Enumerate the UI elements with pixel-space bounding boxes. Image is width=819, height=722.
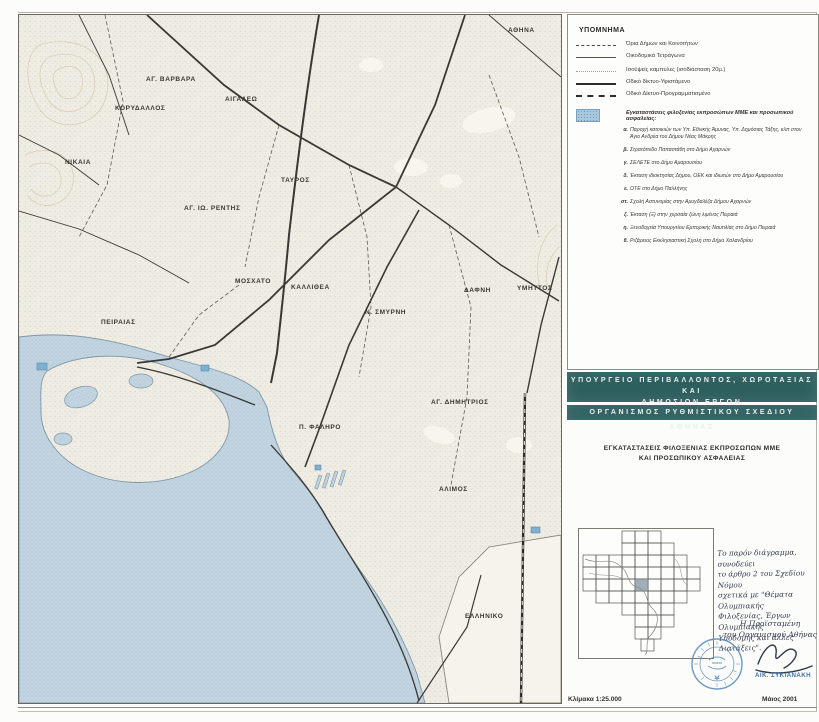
ministry-line1: ΥΠΟΥΡΓΕΙΟ ΠΕΡΙΒΑΛΛΟΝΤΟΣ, ΧΩΡΟΤΑΞΙΑΣ ΚΑΙ [567,376,817,398]
sheet-border-bottom [18,707,817,708]
map-label-n-smyrni: Ν. ΣΜΥΡΝΗ [365,309,406,316]
map-label-alimos: ΑΛΙΜΟΣ [439,486,468,493]
map-label-egaleo: ΑΙΓΑΛΕΩ [225,96,257,103]
facility-item-e: ε. ΟΤΕ στο Δήμο Παλλήνης [630,186,810,193]
map-label-tavros: ΤΑΥΡΟΣ [281,177,310,184]
ministry-title-bar: ΥΠΟΥΡΓΕΙΟ ΠΕΡΙΒΑΛΛΟΝΤΟΣ, ΧΩΡΟΤΑΞΙΑΣ ΚΑΙ … [567,372,817,402]
legend-item-road-planned: Οδικό Δίκτυο-Προγραμματισμένο [576,91,812,101]
map-label-pireas: ΠΕΙΡΑΙΑΣ [101,319,136,326]
road-existing-symbol [576,83,616,85]
signer-name: ΑΙΚ. ΣΥΚΙΑΝΑΚΗ [748,672,818,679]
map-label-korydallos: ΚΟΡΥΔΑΛΛΟΣ [115,105,165,112]
map-label-ag-dimitrios: ΑΓ. ΔΗΜΗΤΡΙΟΣ [431,399,489,406]
facility-item-z: ζ. Έκταση (Ξ) στην χερσαία ζώνη λιμένος … [630,212,810,219]
map-drawing [19,15,561,703]
road-planned-symbol [576,95,616,97]
sheet-border-top [18,12,817,13]
signature-icon [748,636,818,676]
map-label-ymittos: ΥΜΗΤΤΟΣ [517,285,552,292]
map-label-moschato: ΜΟΣΧΑΤΟ [235,278,271,285]
map-label-kallithea: ΚΑΛΛΙΘΕΑ [291,284,330,291]
map-sheet-title: ΕΓΚΑΤΑΣΤΑΣΕΙΣ ΦΙΛΟΞΕΝΙΑΣ ΕΚΠΡΟΣΩΠΩΝ ΜΜΕ … [567,444,817,464]
official-round-stamp-icon [688,632,750,696]
map-label-ag-io-rentis: ΑΓ. ΙΩ. ΡΕΝΤΗΣ [184,205,240,212]
harbor-cove-2 [54,433,72,445]
legend-title: ΥΠΟΜΝΗΜΑ [579,27,625,34]
topographic-map: ΑΘΗΝΑ ΑΓ. ΒΑΡΒΑΡΑ ΚΟΡΥΔΑΛΛΟΣ ΑΙΓΑΛΕΩ ΝΙΚ… [18,14,562,704]
legend-item-contours: Ισοϋψείς καμπύλες (ισοδιάσταση 20μ.) [576,67,812,77]
facility-item-g: γ. ΣΕΛΕΤΕ στο Δήμο Αμαρουσίου [630,160,810,167]
boundary-line-symbol [576,45,616,46]
legend-panel: ΥΠΟΜΝΗΜΑ Όρια Δήμων και Κοινοτήτων Οικοδ… [567,14,819,370]
map-title-line2: ΚΑΙ ΠΡΟΣΩΠΙΚΟΥ ΑΣΦΑΛΕΙΑΣ [567,454,817,464]
note-line3: σχετικά με "Θέματα Ολυμπιακής [718,590,818,613]
facility-item-th: θ. Ριζάρειος Εκκλησιαστική Σχολή στο Δήμ… [630,238,810,245]
facility-item-b: β. Στρατόπεδο Παπαστάθη στο Δήμο Αχαρνών [630,147,810,154]
facility-legend-header: Εγκαταστάσεις φιλοξενίας εκπροσώπων ΜΜΕ … [626,110,812,122]
facility-item-a: α. Παροχή κατοικιών των Υπ. Εθνικής Άμυν… [630,127,810,141]
signoff-line1: Η Προϊσταμένη [722,618,818,629]
facility-item-st: στ. Σχολή Αστυνομίας στην Αμυγδαλέζα Δήμ… [630,199,810,206]
map-label-elliniko: ΕΛΛΗΝΙΚΟ [465,613,503,620]
map-label-athina: ΑΘΗΝΑ [508,27,535,34]
legend-item-road-existing: Οδικό δίκτυο-Υφιστάμενο [576,79,812,89]
harbor-cove [129,374,153,388]
organization-title-bar: ΟΡΓΑΝΙΣΜΟΣ ΡΥΘΜΙΣΤΙΚΟΥ ΣΧΕΔΙΟΥ ΑΘΗΝΑΣ [567,405,817,420]
map-title-line1: ΕΓΚΑΤΑΣΤΑΣΕΙΣ ΦΙΛΟΞΕΝΙΑΣ ΕΚΠΡΟΣΩΠΩΝ ΜΜΕ [567,444,817,454]
contour-line-symbol [576,71,616,72]
map-date: Μάιος 2001 [762,696,797,703]
legend-item-boundaries: Όρια Δήμων και Κοινοτήτων [576,41,812,51]
note-line1: Το παρόν διάγραμμα, συνοδεύει [717,547,817,570]
map-label-p-faliro: Π. ΦΑΛΗΡΟ [299,424,341,431]
legend-item-blocks: Οικοδομικά Τετράγωνα [576,53,812,63]
note-line2: το άρθρο 2 του Σχεδίου Νόμου [718,568,818,591]
facility-item-h: η. Ξενοδοχεία Υπουργείου Εμπορικής Ναυτι… [630,225,810,232]
map-label-dafni: ΔΑΦΝΗ [464,287,491,294]
map-label-ag-varvara: ΑΓ. ΒΑΡΒΑΡΑ [146,76,196,83]
map-label-nikea: ΝΙΚΑΙΑ [65,159,91,166]
map-scale: Κλίμακα 1:25.000 [568,696,622,703]
sheet-border-bottom-inner [18,711,817,712]
block-line-symbol [576,57,616,58]
facility-item-d: δ. Έκταση ιδιοκτησίας Δήμου, ΟΕΚ και ιδι… [630,173,810,180]
facility-area-swatch [576,109,600,122]
